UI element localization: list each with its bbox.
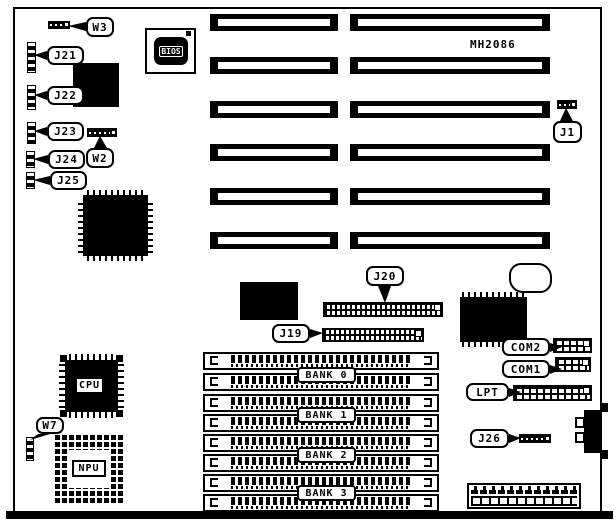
lpt-callout: LPT <box>466 383 509 401</box>
j1-callout: J1 <box>553 121 582 143</box>
w7-callout: W7 <box>36 417 64 434</box>
cpu-label: CPU <box>75 377 104 394</box>
w2-callout: W2 <box>86 148 114 168</box>
com1-callout: COM1 <box>502 360 550 378</box>
bank0-label: BANK 0 <box>297 367 356 383</box>
bank2-label: BANK 2 <box>297 447 356 463</box>
npu-label: NPU <box>72 460 106 477</box>
j22-callout: J22 <box>47 86 84 105</box>
j23-callout: J23 <box>47 122 84 141</box>
j19-callout: J19 <box>272 324 310 343</box>
motherboard-diagram: MH2086 BIOS CPU NPU <box>0 0 616 527</box>
j21-callout: J21 <box>47 46 84 65</box>
j24-callout: J24 <box>48 150 85 169</box>
j20-callout: J20 <box>366 266 404 286</box>
com2-callout: COM2 <box>502 338 550 356</box>
j25-callout: J25 <box>50 171 87 190</box>
j26-callout: J26 <box>470 429 509 448</box>
bank3-label: BANK 3 <box>297 485 356 501</box>
bank1-label: BANK 1 <box>297 407 356 423</box>
w3-callout: W3 <box>86 17 114 37</box>
